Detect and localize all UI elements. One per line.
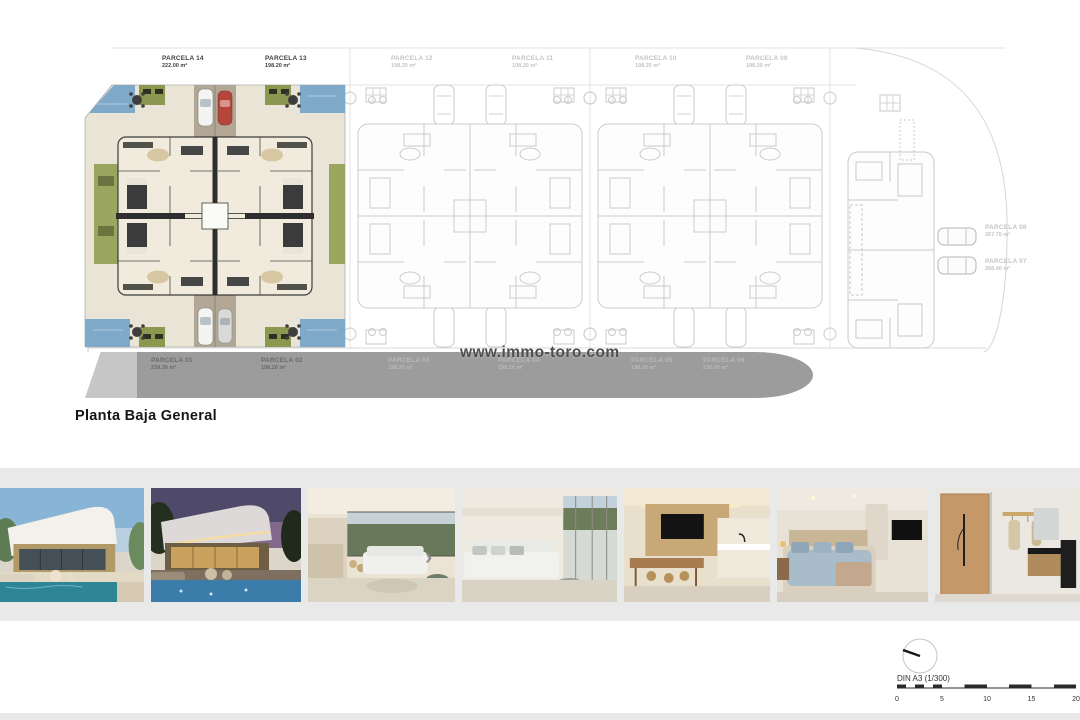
parcel-label-02: PARCELA 02198.20 m² <box>261 357 303 372</box>
parcel-label-12: PARCELA 12198.20 m² <box>391 55 433 70</box>
parcel-label-01: PARCELA 01239.30 m² <box>151 357 193 372</box>
parcel-label-10: PARCELA 10198.20 m² <box>635 55 677 70</box>
watermark: www.immo-toro.com <box>460 344 620 362</box>
photo-kitchen-dining[interactable] <box>624 488 770 602</box>
car-white-top <box>198 89 213 126</box>
page-title: Planta Baja General <box>75 408 217 424</box>
bedroom-image <box>777 488 928 602</box>
villa-dusk-image <box>151 488 301 602</box>
photo-gallery: › <box>0 468 1080 621</box>
scale-tick-15: 15 <box>1028 696 1036 703</box>
car-silver-bottom <box>218 309 232 343</box>
photo-living-room-kitchen[interactable] <box>308 488 455 602</box>
highlighted-parcels-block <box>85 85 345 347</box>
villa-day-image <box>0 488 144 602</box>
scale-label: DIN A3 (1/300) <box>897 674 950 683</box>
floor-plan-drawing <box>0 0 1080 470</box>
scale-and-compass: DIN A3 (1/300) 0 5 10 15 20 <box>880 628 1080 713</box>
parcel-label-08: PARCELA 08267.70 m² <box>985 224 1027 239</box>
north-compass-icon <box>903 639 937 673</box>
car-white-bottom <box>198 308 213 345</box>
bottom-edge-strip <box>0 713 1080 720</box>
parcel-label-06: PARCELA 06230.00 m² <box>703 357 745 372</box>
living-terrace-image <box>462 488 617 602</box>
site-plan-page: PARCELA 14222.00 m² PARCELA 13198.20 m² … <box>0 0 1080 720</box>
right-plot-section <box>848 48 1007 352</box>
photo-bathroom[interactable] <box>935 488 1080 602</box>
scale-tick-20: 20 <box>1072 696 1080 703</box>
car-red-top <box>218 91 232 125</box>
living-kitchen-image <box>308 488 455 602</box>
photo-bedroom[interactable] <box>777 488 928 602</box>
photo-living-room-terrace[interactable] <box>462 488 617 602</box>
parcel-label-03: PARCELA 03198.20 m² <box>388 357 430 372</box>
scale-tick-5: 5 <box>940 696 944 703</box>
parcel-label-11: PARCELA 11198.20 m² <box>512 55 553 70</box>
parcel-label-05: PARCELA 05198.20 m² <box>631 357 673 372</box>
scale-tick-10: 10 <box>983 696 991 703</box>
parcel-label-09: PARCELA 09198.20 m² <box>746 55 788 70</box>
parcel-label-13: PARCELA 13198.20 m² <box>265 55 307 70</box>
photo-villa-exterior-dusk[interactable] <box>151 488 301 602</box>
parcel-label-14: PARCELA 14222.00 m² <box>162 55 204 70</box>
parcel-label-07: PARCELA 07268.40 m² <box>985 258 1027 273</box>
bathroom-image <box>935 488 1080 602</box>
scale-bar: 0 5 10 15 20 <box>895 685 1080 704</box>
scale-tick-0: 0 <box>895 696 899 703</box>
kitchen-dining-image <box>624 488 770 602</box>
carousel-next-icon[interactable]: › <box>425 546 432 568</box>
photo-villa-exterior-day[interactable] <box>0 488 144 602</box>
